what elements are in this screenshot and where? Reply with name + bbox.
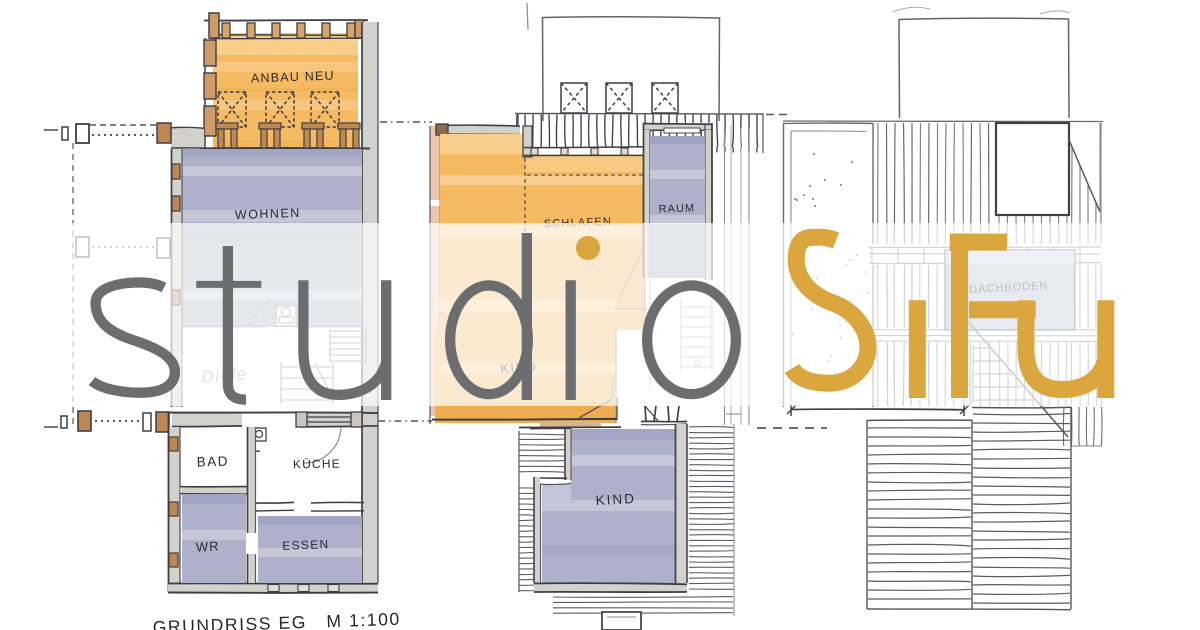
svg-text:WOHNEN: WOHNEN bbox=[235, 206, 301, 222]
svg-text:RAUM: RAUM bbox=[659, 202, 696, 215]
svg-text:ANBAU NEU: ANBAU NEU bbox=[251, 69, 335, 86]
svg-text:KIND: KIND bbox=[595, 491, 636, 508]
svg-text:BAD: BAD bbox=[196, 453, 229, 469]
svg-text:KÜCHE: KÜCHE bbox=[293, 457, 341, 472]
svg-text:ESSEN: ESSEN bbox=[282, 537, 330, 553]
svg-text:WR: WR bbox=[196, 538, 220, 554]
